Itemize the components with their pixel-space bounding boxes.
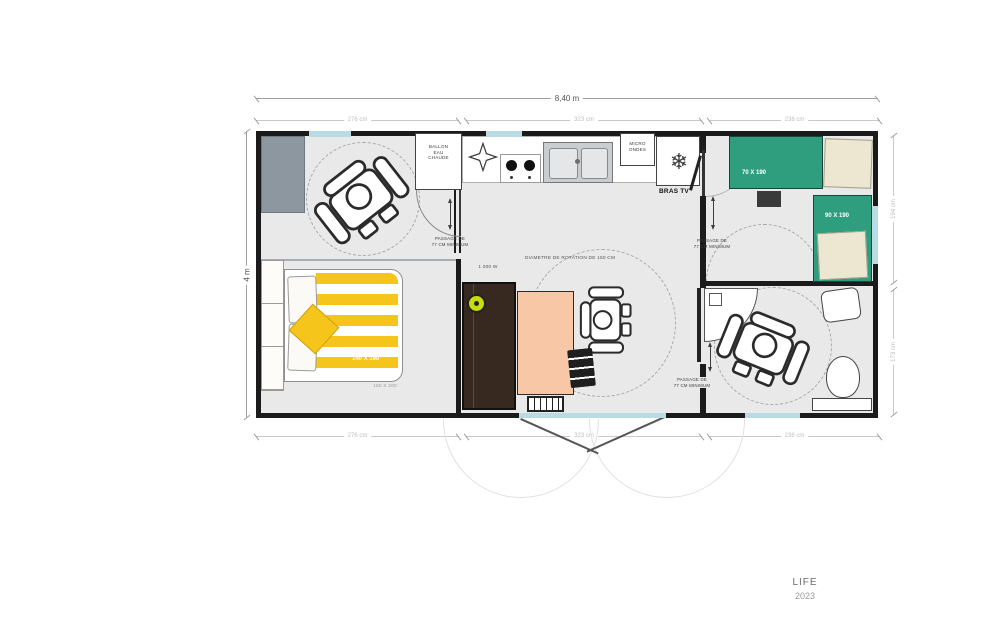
- rotation-diameter-label: DIAMETRE DE ROTATION DE 150 CM: [510, 256, 630, 262]
- water-heater-line3: CHAUDE: [428, 155, 449, 160]
- microwave-line2: ONDES: [629, 147, 646, 152]
- toilet: [826, 356, 860, 398]
- nightstand: [757, 191, 781, 207]
- single-bed-small-label: 70 X 190: [742, 170, 766, 176]
- pillow: [823, 138, 873, 189]
- wall-dining-left: [456, 259, 461, 414]
- dimension-total-height: 4 m: [246, 131, 247, 418]
- bedroom2-rotation-circle: [706, 224, 822, 281]
- passage-living-line1: PASSAGE DE: [435, 236, 465, 241]
- sink-basin: [581, 148, 608, 179]
- window-bay-entrance: [519, 413, 666, 418]
- dimension-right-2: 173 cm: [893, 289, 894, 415]
- dimension-top-3: 238 cm: [709, 120, 880, 121]
- cooktop: [500, 154, 541, 183]
- passage-bedroom2-line2: 77 CM MINIMUM: [694, 244, 731, 249]
- passage-label-bathroom: PASSAGE DE 77 CM MINIMUM: [664, 377, 720, 388]
- passage-label-bedroom2: PASSAGE DE 77 CM MINIMUM: [684, 238, 740, 249]
- dimension-right-2-label: 173 cm: [891, 339, 897, 365]
- living-storage-unit: [261, 136, 305, 213]
- entrance-arc-clip: [256, 419, 878, 499]
- bathroom-shelf: [812, 398, 872, 411]
- brand-badge-icon: [467, 294, 486, 313]
- dimension-top-1: 276 cm: [256, 120, 459, 121]
- headboard-shelf: [261, 260, 284, 391]
- dimension-total-height-label: 4 m: [243, 265, 252, 284]
- faucet-icon: [575, 159, 580, 164]
- passage-arrow-bedroom2: [713, 198, 714, 228]
- washbasin: [820, 287, 862, 324]
- dimension-top-1-label: 276 cm: [344, 117, 372, 123]
- shower-drain-icon: [709, 293, 722, 306]
- knob-icon: [528, 176, 531, 179]
- passage-bedroom2-line1: PASSAGE DE: [697, 238, 727, 243]
- dimension-total-width: 8,40 m: [256, 98, 878, 99]
- floor-plan-canvas: 8,40 m 4 m 276 cm 323 cm 238 cm 276 cm 3…: [0, 0, 1000, 626]
- microwave-label: MICRO ONDES: [620, 141, 655, 152]
- passage-label-living: PASSAGE DE 77 CM MINIMUM: [420, 236, 480, 247]
- dimension-top-2: 323 cm: [466, 120, 702, 121]
- water-heater-closet: [415, 133, 462, 190]
- dining-table: [517, 291, 574, 395]
- power-label: 1 000 W: [468, 265, 508, 271]
- pillow: [817, 231, 868, 281]
- water-heater-label: BALLON EAU CHAUDE: [415, 144, 462, 161]
- dimension-top-3-label: 238 cm: [781, 117, 809, 123]
- dimension-right-1-label: 194 cm: [891, 196, 897, 222]
- brand-name: LIFE: [775, 577, 835, 588]
- entrance-door-arc: [443, 419, 599, 498]
- brand-block: LIFE 2023: [775, 577, 835, 601]
- brand-year: 2023: [775, 591, 835, 601]
- window-top-living: [309, 131, 351, 137]
- burner-icon: [506, 160, 517, 171]
- closet-door-leaf: [459, 190, 461, 236]
- heater-vent: [527, 396, 564, 412]
- wall-bedroom-partition: [261, 259, 459, 261]
- dining-chair: [567, 348, 596, 388]
- sink-basin: [549, 148, 578, 179]
- burner-icon: [524, 160, 535, 171]
- bedroom2-door-leaf: [702, 150, 705, 196]
- double-bed-alt-label: 160 X 200: [360, 384, 410, 390]
- single-bed-large-label: 90 X 190: [825, 213, 849, 219]
- window-top-kitchen: [486, 131, 522, 137]
- microwave-line1: MICRO: [629, 141, 645, 146]
- passage-living-line2: 77 CM MINIMUM: [432, 242, 469, 247]
- vent-star-icon: [468, 142, 498, 172]
- badge-dot-icon: [474, 301, 479, 306]
- dimension-right-1: 194 cm: [893, 135, 894, 283]
- window-bathroom: [745, 413, 800, 418]
- dimension-top-2-label: 323 cm: [570, 117, 598, 123]
- entrance-door-arc: [589, 419, 745, 498]
- double-bed-label: 140 X 190: [352, 356, 379, 362]
- single-bed-small: [729, 136, 823, 189]
- window-right-bedroom2: [872, 206, 878, 264]
- wheelchair-user-icon: [570, 286, 638, 354]
- dimension-total-width-label: 8,40 m: [551, 94, 583, 103]
- passage-bathroom-line2: 77 CM MINIMUM: [674, 383, 711, 388]
- kitchen-sink: [543, 142, 613, 183]
- tv-arm-label: BRAS TV: [648, 188, 700, 196]
- bathroom-door-leaf: [697, 288, 701, 362]
- water-heater-line1: BALLON: [429, 144, 448, 149]
- water-heater-line2: EAU: [433, 150, 443, 155]
- passage-arrow-bathroom: [710, 344, 711, 370]
- passage-arrow-living: [450, 200, 451, 228]
- knob-icon: [510, 176, 513, 179]
- passage-bathroom-line1: PASSAGE DE: [677, 377, 707, 382]
